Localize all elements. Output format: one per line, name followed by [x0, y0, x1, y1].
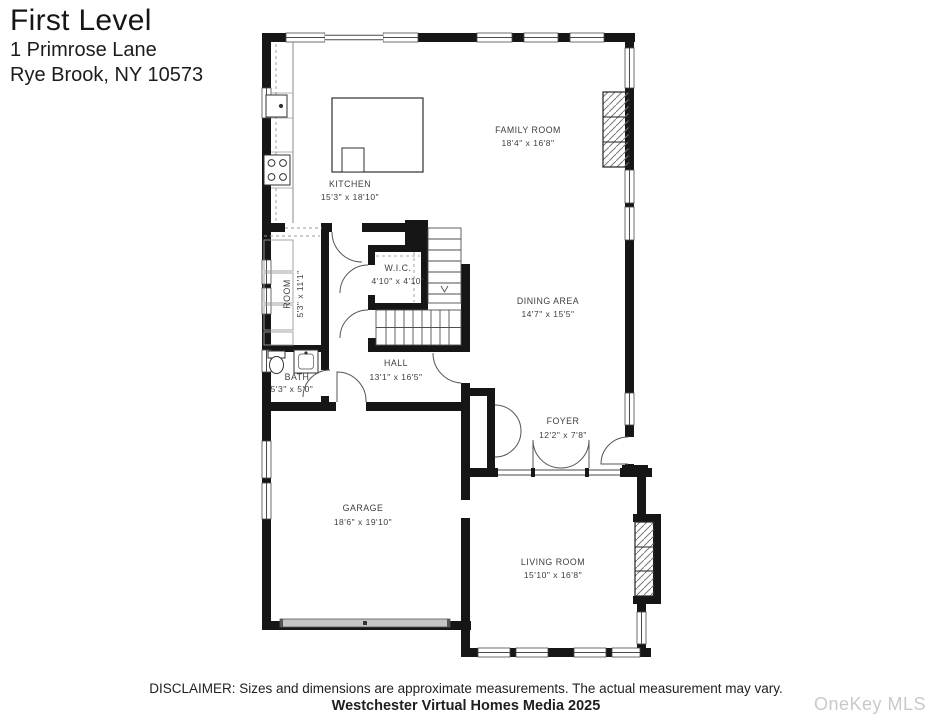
- svg-text:LIVING ROOM: LIVING ROOM: [521, 557, 585, 567]
- floor-plan: FAMILY ROOM 18'4" x 16'8" KITCHEN 15'3" …: [0, 0, 932, 720]
- bath-fixtures: [268, 350, 318, 374]
- svg-text:DINING AREA: DINING AREA: [517, 296, 579, 306]
- svg-text:W.I.C.: W.I.C.: [385, 263, 412, 273]
- floorplan-page: First Level 1 Primrose Lane Rye Brook, N…: [0, 0, 932, 720]
- room-label-garage: GARAGE 18'6" x 19'10": [334, 503, 392, 527]
- garage-entry-door: [337, 372, 366, 402]
- room-label-room: ROOM 5'3" x 11'1": [282, 270, 305, 317]
- watermark: OneKey MLS: [814, 694, 926, 715]
- room-label-foyer: FOYER 12'2" x 7'8": [539, 416, 587, 440]
- plan-address-line1: 1 Primrose Lane: [10, 38, 203, 63]
- toilet: [268, 351, 285, 374]
- svg-text:ROOM: ROOM: [282, 279, 292, 308]
- svg-text:HALL: HALL: [384, 358, 408, 368]
- svg-text:5'3" x 5'0": 5'3" x 5'0": [271, 384, 314, 394]
- svg-text:15'3" x 18'10": 15'3" x 18'10": [321, 192, 379, 202]
- room-label-wic: W.I.C. 4'10" x 4'10": [371, 263, 424, 286]
- bath-sink: [294, 350, 318, 373]
- svg-text:13'1" x 16'5": 13'1" x 16'5": [369, 372, 422, 382]
- svg-text:BATH: BATH: [285, 372, 310, 382]
- kitchen-island: [332, 98, 423, 172]
- disclaimer-text: DISCLAIMER: Sizes and dimensions are app…: [0, 681, 932, 696]
- walls: [262, 33, 661, 657]
- foyer-side-door: [601, 437, 628, 464]
- foyer-closet-door-top: [495, 405, 521, 431]
- garage-door: [280, 619, 450, 627]
- credit-text: Westchester Virtual Homes Media 2025: [0, 698, 932, 714]
- mudroom-cabinets: [264, 228, 322, 345]
- svg-text:KITCHEN: KITCHEN: [329, 179, 371, 189]
- svg-text:GARAGE: GARAGE: [343, 503, 384, 513]
- foyer-closet-door-bottom: [495, 431, 521, 457]
- fireplace-living-room: [635, 522, 654, 596]
- plan-title: First Level: [10, 4, 203, 38]
- room-label-family-room: FAMILY ROOM 18'4" x 16'8": [495, 125, 561, 148]
- kitchen-hall-door: [332, 232, 362, 262]
- sink: [266, 95, 287, 117]
- room-label-kitchen: KITCHEN 15'3" x 18'10": [321, 179, 379, 202]
- svg-text:FOYER: FOYER: [547, 416, 580, 426]
- hall-foyer-door: [433, 353, 461, 383]
- svg-text:12'2" x 7'8": 12'2" x 7'8": [539, 430, 587, 440]
- svg-text:15'10" x 16'8": 15'10" x 16'8": [524, 570, 582, 580]
- svg-text:14'7" x 15'5": 14'7" x 15'5": [521, 309, 574, 319]
- stair-arrow: [441, 286, 448, 292]
- plan-header: First Level 1 Primrose Lane Rye Brook, N…: [10, 4, 203, 88]
- svg-text:18'6" x 19'10": 18'6" x 19'10": [334, 517, 392, 527]
- stair-door: [340, 310, 368, 338]
- svg-text:5'3" x 11'1": 5'3" x 11'1": [295, 270, 305, 317]
- plan-address-line2: Rye Brook, NY 10573: [10, 63, 203, 88]
- entry-door-right: [561, 440, 589, 468]
- room-label-hall: HALL 13'1" x 16'5": [369, 358, 422, 382]
- fireplace-family-room: [603, 92, 629, 167]
- svg-text:FAMILY ROOM: FAMILY ROOM: [495, 125, 561, 135]
- room-label-dining-area: DINING AREA 14'7" x 15'5": [517, 296, 579, 319]
- room-label-living-room: LIVING ROOM 15'10" x 16'8": [521, 557, 585, 580]
- entry-door-left: [533, 440, 561, 468]
- stove: [264, 155, 290, 185]
- svg-text:18'4" x 16'8": 18'4" x 16'8": [501, 138, 554, 148]
- wic-door: [340, 265, 368, 293]
- svg-text:4'10" x 4'10": 4'10" x 4'10": [371, 276, 424, 286]
